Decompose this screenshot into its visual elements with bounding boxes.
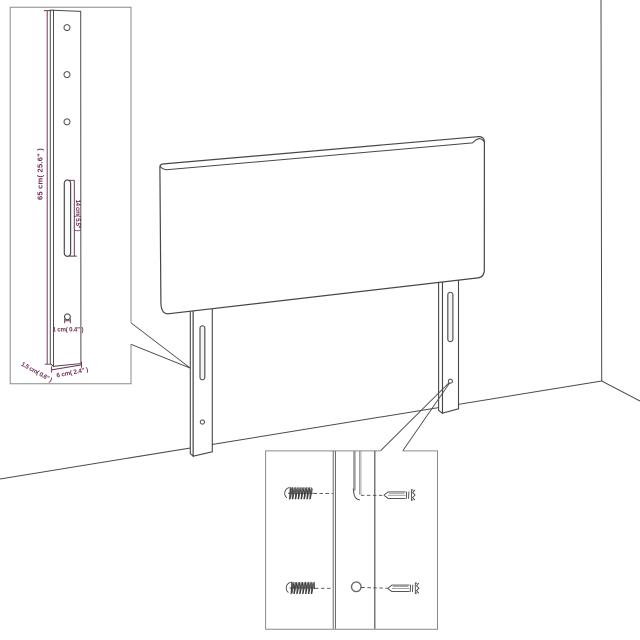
svg-text:65 cm( 25.6" ): 65 cm( 25.6" ): [36, 148, 45, 200]
svg-text:1 cm( 0.4" ): 1 cm( 0.4" ): [52, 327, 83, 334]
svg-text:14 cm( 5.5" ): 14 cm( 5.5" ): [74, 200, 81, 232]
